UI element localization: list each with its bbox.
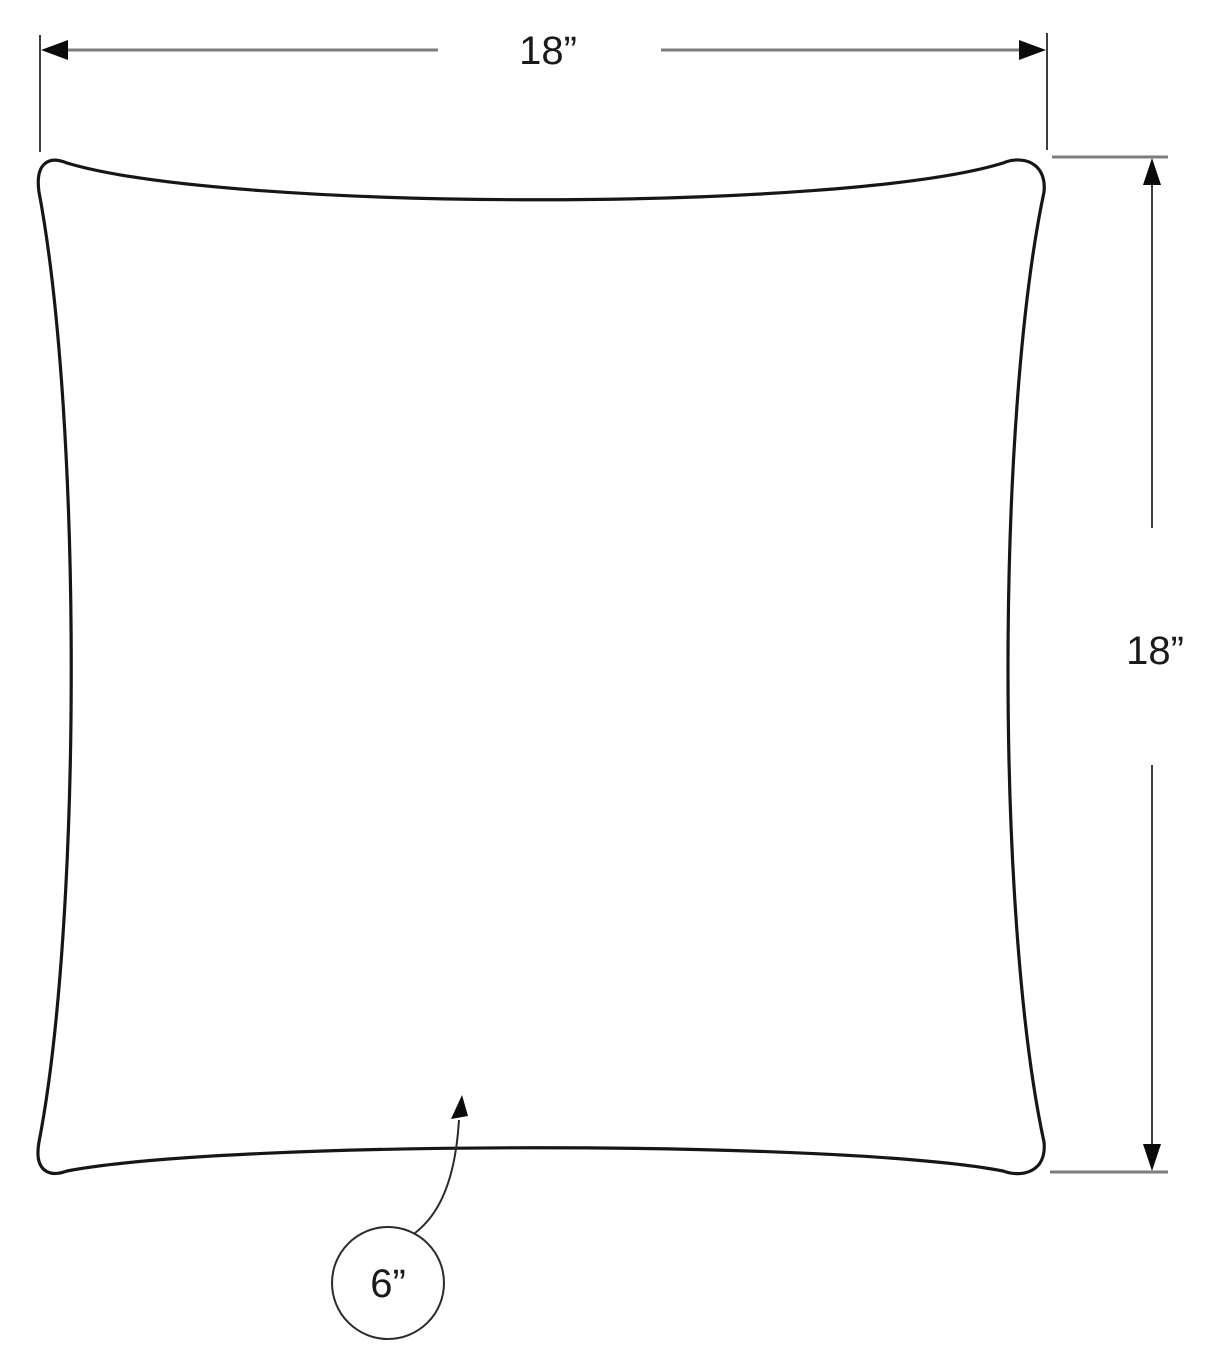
height-arrowhead-down-icon xyxy=(1143,1144,1161,1171)
height-dimension: 18” xyxy=(1050,157,1184,1172)
callout-label: 6” xyxy=(370,1262,406,1306)
width-dimension: 18” xyxy=(40,29,1047,152)
height-arrowhead-up-icon xyxy=(1143,158,1161,185)
width-arrowhead-right-icon xyxy=(1019,40,1046,60)
width-dimension-label: 18” xyxy=(519,29,577,73)
pillow xyxy=(38,160,1044,1174)
height-dimension-label: 18” xyxy=(1126,629,1184,673)
width-arrowhead-left-icon xyxy=(41,40,68,60)
diagram-canvas: 18” 18” 6” xyxy=(0,0,1209,1372)
pillow-outline xyxy=(38,160,1044,1174)
pillow-dimension-diagram: 18” 18” 6” xyxy=(0,0,1209,1372)
